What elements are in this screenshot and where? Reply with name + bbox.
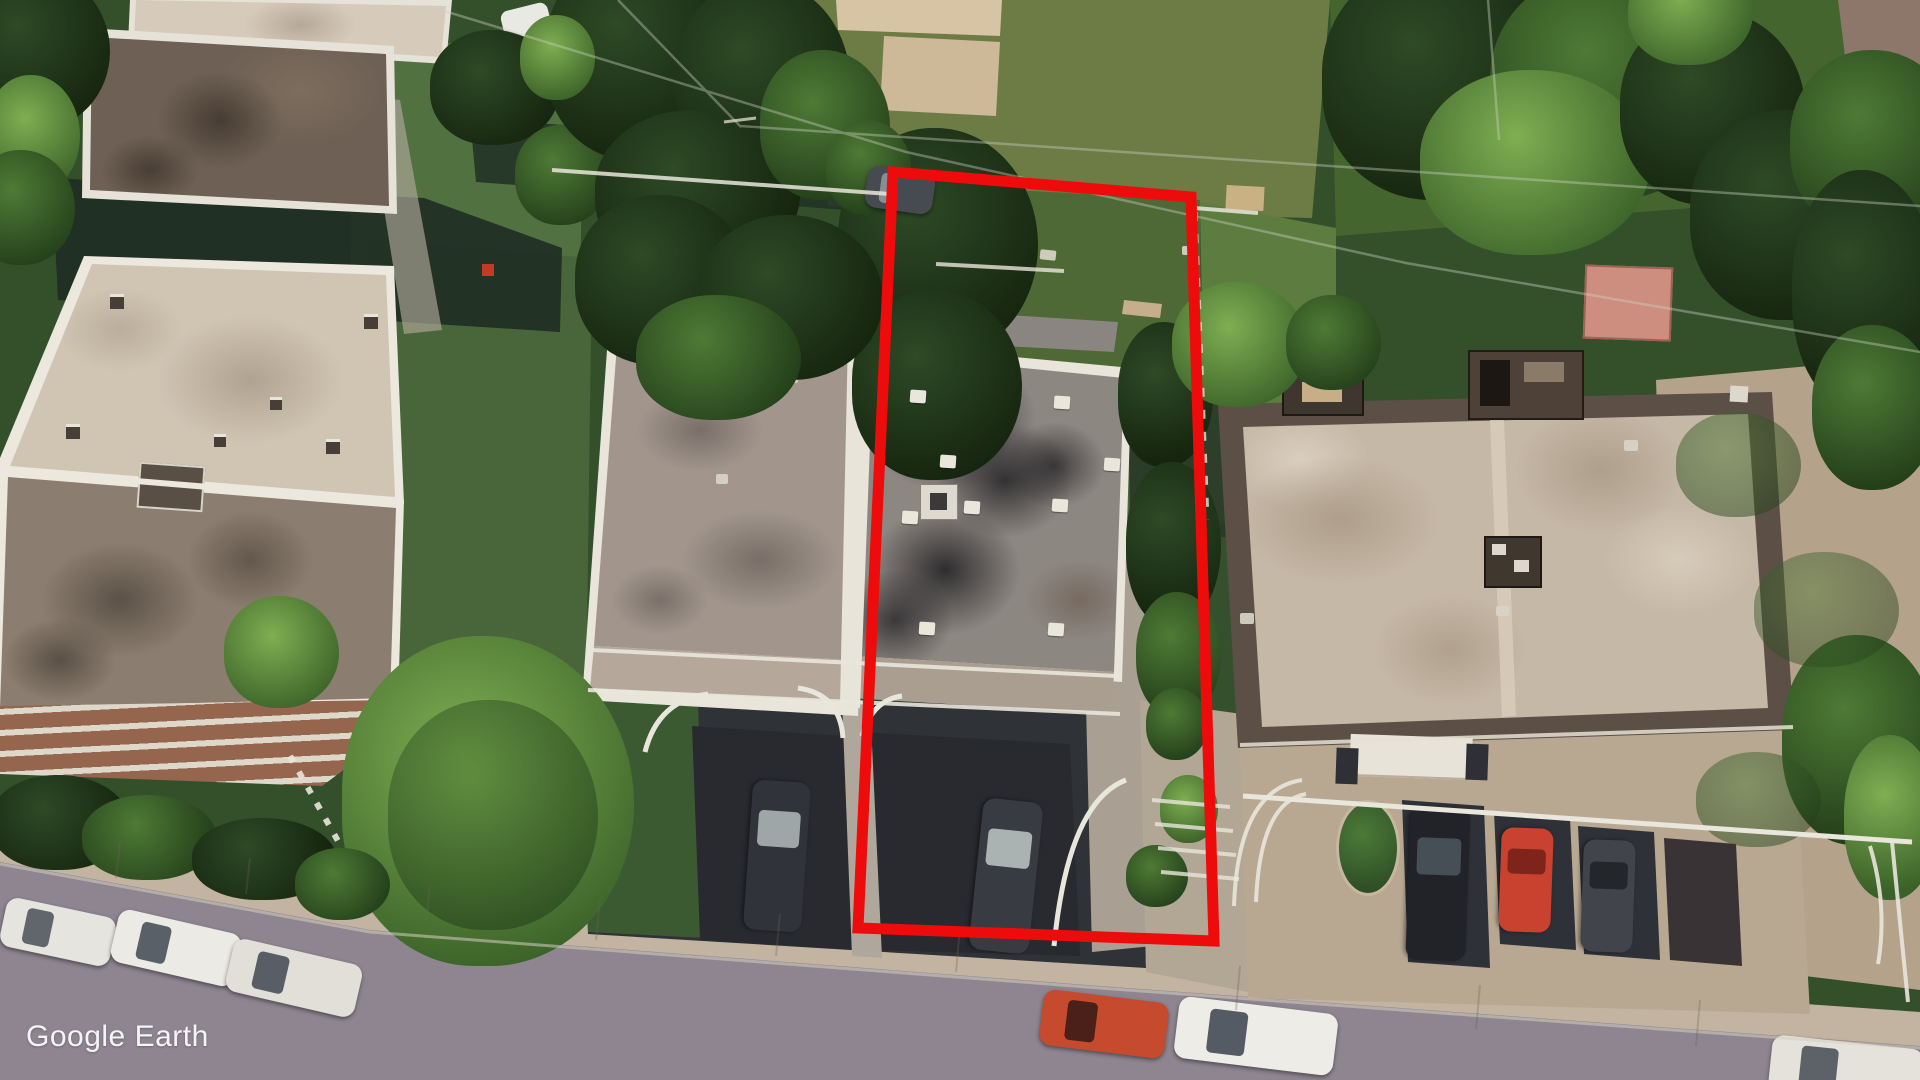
white-car-street-left-1-windshield: [21, 907, 55, 948]
parcel-roof-vent: [940, 454, 957, 468]
roof-vent: [214, 434, 226, 447]
right-roof-vent: [1240, 613, 1254, 624]
roof-vent: [326, 439, 340, 454]
right-roof-vent: [1624, 440, 1638, 451]
parcel-roof-vent: [1048, 622, 1065, 636]
roof-vent: [66, 424, 80, 439]
gray-car-right-building: [1580, 839, 1636, 953]
roof-vent: [270, 397, 282, 410]
walkway-shrub: [1146, 688, 1208, 760]
parcel-roof-vent: [964, 500, 981, 514]
right-building-rooftop-box-2: [1468, 350, 1584, 420]
white-car-street-left-2-windshield: [135, 921, 173, 966]
front-shrub-planter: [1336, 800, 1400, 896]
parcel-roof-vent: [1052, 498, 1069, 512]
roof-vent: [364, 314, 378, 329]
parcel-roof-chimney: [920, 484, 958, 520]
backyard-gate-post: [1182, 246, 1194, 255]
red-yard-object: [482, 264, 494, 276]
pink-shed: [1583, 264, 1674, 341]
red-car-right-building-windshield: [1508, 848, 1546, 874]
tree: [1286, 295, 1381, 390]
parcel-roof-vent: [1054, 395, 1071, 409]
tree: [1420, 70, 1650, 255]
red-car-street-center-windshield: [1064, 999, 1099, 1043]
right-building-chimney: [1484, 536, 1542, 588]
back-deck-2: [836, 0, 1002, 36]
corner-bush: [224, 596, 339, 708]
dark-car-left-duplex-driveway: [743, 779, 811, 933]
right-building-door: [1465, 744, 1488, 781]
parcel-roof-vent: [902, 510, 919, 524]
right-building-rooftop-vent: [1730, 386, 1749, 403]
black-suv-right-building-windshield: [1417, 838, 1461, 876]
dirt-grass-patch: [1754, 552, 1899, 667]
parking-pad-4-empty: [1664, 838, 1742, 966]
facade-hedge: [295, 848, 390, 920]
walkway-shrub: [1160, 775, 1218, 843]
dirt-grass-patch: [1676, 412, 1801, 517]
white-car-street-right-partial-windshield: [1799, 1045, 1839, 1080]
right-roof-vent: [1496, 606, 1509, 616]
dirt-grass-patch: [1696, 752, 1821, 847]
gray-car-right-building-windshield: [1590, 862, 1628, 890]
tan-shed-by-parcel-corner: [1225, 185, 1264, 211]
duplex-left-roof-vent: [716, 474, 728, 484]
red-car-right-building: [1498, 827, 1554, 933]
roof-vent: [110, 294, 124, 309]
right-building-door: [1335, 748, 1358, 785]
dark-car-left-duplex-driveway-windshield: [757, 810, 801, 849]
satellite-map-viewport[interactable]: Google Earth: [0, 0, 1920, 1080]
dark-car-parcel-driveway-windshield: [985, 828, 1032, 869]
dark-vehicle-back-alley-windshield: [878, 172, 898, 204]
white-car-street-center-windshield: [1206, 1008, 1250, 1057]
right-building-entry-awning: [1349, 734, 1472, 780]
black-suv-right-building: [1405, 807, 1470, 961]
walkway-shrub: [1126, 845, 1188, 907]
parcel-roof-vent: [1104, 457, 1121, 471]
parcel-roof-vent: [919, 621, 936, 635]
large-front-tree-shade: [388, 700, 598, 930]
white-car-street-left-3-windshield: [251, 950, 291, 995]
tree: [1812, 325, 1920, 490]
tree: [520, 15, 595, 100]
bottom-right-bush: [1844, 735, 1920, 900]
duplex-back-tree: [636, 295, 801, 420]
left-building-roof-hatch: [136, 462, 205, 512]
backyard-white-bin: [1040, 249, 1057, 261]
google-earth-watermark: Google Earth: [26, 1020, 209, 1054]
parcel-roof-vent: [910, 389, 927, 403]
back-patio-pad: [880, 36, 1000, 116]
